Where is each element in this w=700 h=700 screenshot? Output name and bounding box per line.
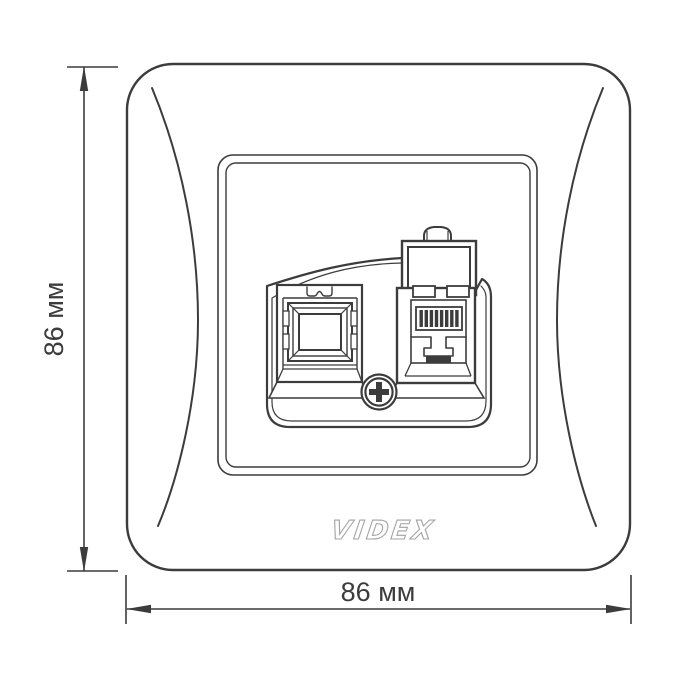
drawing-canvas: 86 мм 86 мм VIDEX <box>0 0 700 700</box>
rj45-pin <box>425 310 428 327</box>
keystone-latch-tab-left-lower <box>283 334 289 349</box>
rj45-pin <box>455 310 458 327</box>
rj45-latch-bar <box>426 356 451 363</box>
rj45-pin <box>450 310 453 327</box>
arrowhead-up-icon <box>80 66 88 91</box>
keystone-latch-tab-left-upper <box>283 311 289 326</box>
fixing-screw <box>362 375 397 410</box>
brand-logo: VIDEX <box>329 516 437 546</box>
rj45-pin <box>420 310 423 327</box>
vertical-dimension: 86 мм <box>39 66 118 572</box>
keystone-opening <box>299 314 341 350</box>
width-dimension-label: 86 мм <box>341 577 416 607</box>
keystone-latch-tab-right-lower <box>351 334 357 349</box>
arrowhead-down-icon <box>80 547 88 572</box>
flap-dome-bump <box>424 227 451 242</box>
rj45-pin <box>430 310 433 327</box>
faceplate-dimension-drawing: 86 мм 86 мм VIDEX <box>0 0 700 700</box>
rj45-pin <box>445 310 448 327</box>
flap-hinge-tab-right <box>447 286 469 297</box>
rj45-base-flare <box>389 383 484 398</box>
rj45-pin <box>440 310 443 327</box>
arrowhead-right-icon <box>606 605 631 613</box>
arrowhead-left-icon <box>126 605 151 613</box>
rj45-pin <box>435 310 438 327</box>
flap-hinge-tab-left <box>413 286 435 297</box>
horizontal-dimension: 86 мм <box>126 575 631 624</box>
keystone-latch-tab-right-upper <box>351 311 357 326</box>
height-dimension-label: 86 мм <box>39 282 69 357</box>
rj45-pin-block <box>416 307 462 330</box>
rj45-socket <box>389 227 484 398</box>
keystone-base-flare <box>269 382 370 398</box>
keystone-slot <box>269 285 370 398</box>
